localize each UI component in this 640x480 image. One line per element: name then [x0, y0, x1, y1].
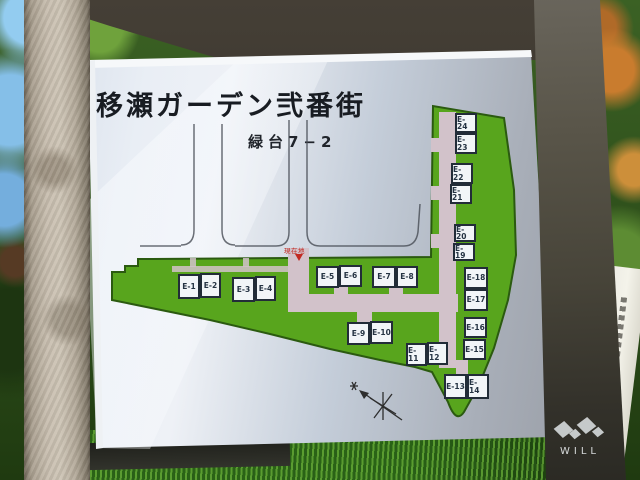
building-box: E-16	[464, 317, 487, 338]
signboard-photo: 移瀬ガーデン弐番街 緑台7−2 現在地	[0, 0, 640, 480]
building-box: E-24	[455, 113, 477, 133]
building-box: E-4	[255, 276, 276, 301]
building-box: E-3	[232, 277, 255, 302]
will-logo-icon	[554, 416, 606, 442]
building-box: E-22	[451, 163, 473, 184]
building-box: E-2	[200, 273, 221, 298]
building-box: E-17	[464, 289, 488, 311]
watermark-text: WILL	[550, 446, 610, 457]
building-box: E-21	[450, 184, 472, 204]
building-box: E-19	[453, 243, 475, 261]
building-box: E-6	[339, 265, 362, 287]
building-box: E-1	[178, 274, 200, 299]
building-box: E-8	[396, 266, 418, 288]
compass-rose-icon	[350, 382, 402, 420]
building-box: E-13	[444, 374, 467, 399]
concrete-pillar-left	[24, 0, 90, 480]
building-box: E-10	[370, 321, 393, 344]
you-are-here-marker	[295, 254, 303, 261]
building-box: E-14	[467, 374, 489, 399]
building-box: E-12	[427, 342, 448, 365]
building-box: E-9	[347, 322, 370, 345]
building-box: E-11	[406, 343, 427, 366]
building-box: E-20	[454, 224, 476, 242]
building-box: E-7	[372, 266, 396, 288]
building-box: E-15	[463, 339, 486, 360]
building-box: E-5	[316, 266, 339, 288]
will-watermark: WILL	[550, 414, 610, 466]
building-box: E-23	[455, 133, 477, 154]
building-box: E-18	[464, 267, 488, 289]
